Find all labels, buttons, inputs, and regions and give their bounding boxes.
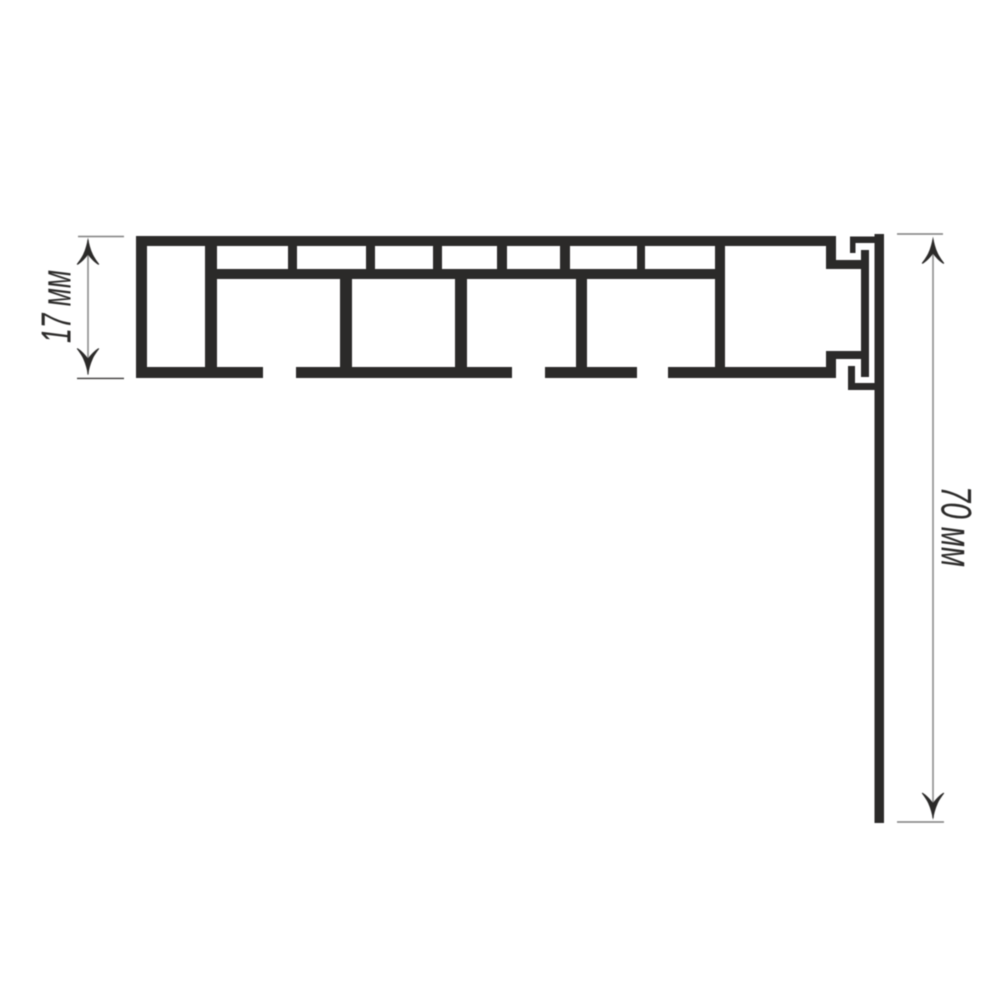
svg-text:17 мм: 17 мм (33, 270, 80, 343)
svg-text:70 мм: 70 мм (932, 486, 980, 567)
